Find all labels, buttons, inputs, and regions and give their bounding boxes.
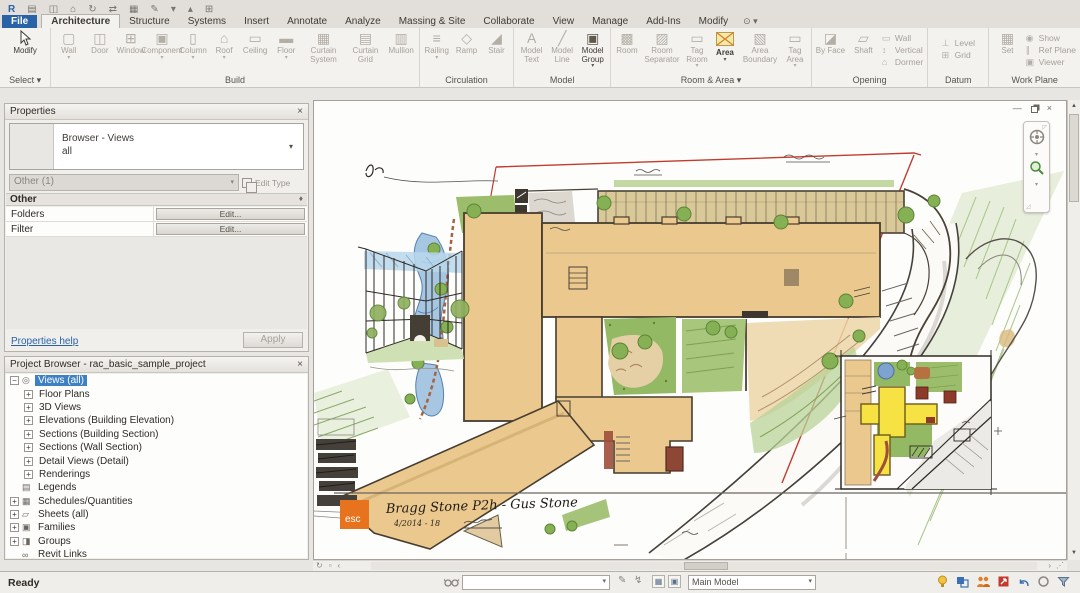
worksets-people-icon[interactable]: [976, 575, 990, 593]
navbar-corner-mark: ◸: [1042, 124, 1047, 131]
type-instance: all: [62, 145, 283, 158]
panel-datum: ⊥Level ⊞Grid Datum: [928, 28, 989, 87]
legends-icon: ▤: [22, 482, 35, 493]
edit-type-button[interactable]: Edit Type: [242, 174, 304, 191]
tab-systems[interactable]: Systems: [179, 15, 235, 28]
tip-bulb-icon[interactable]: [936, 575, 949, 593]
chevron-down-icon: ▾: [230, 176, 234, 189]
measure-icon[interactable]: ✎: [150, 4, 158, 13]
tag-room-button[interactable]: ▭Tag Room▾: [683, 29, 711, 74]
set-work-plane-icon: ▦: [1001, 30, 1014, 47]
perspective-vignette: [358, 247, 469, 371]
mullion-icon: ▥: [395, 30, 408, 47]
link-icon: ∞: [22, 550, 35, 558]
tag-area-icon: ▭: [788, 30, 801, 47]
door-icon: ◫: [93, 30, 106, 47]
views-icon: ◎: [22, 375, 35, 386]
tree-item-families[interactable]: +▣Families: [6, 521, 307, 534]
properties-empty-area: [6, 237, 307, 329]
visual-style-icon[interactable]: ‹: [338, 561, 341, 571]
roof-button[interactable]: ⌂Roof▾: [209, 29, 240, 74]
selection-toggle-icon[interactable]: [1037, 575, 1050, 593]
print-icon[interactable]: ▦: [129, 4, 138, 13]
dormer-button[interactable]: ⌂Dormer: [882, 56, 923, 68]
tab-modify[interactable]: Modify: [690, 15, 737, 28]
tree-item-elevations[interactable]: +Elevations (Building Elevation): [6, 414, 307, 427]
roof-icon: ⌂: [220, 30, 228, 47]
scale-icon[interactable]: ↻: [316, 561, 323, 571]
panel-opening: ◪By Face ▱Shaft ▭Wall ↕Vertical ⌂Dormer …: [812, 28, 928, 87]
inset-detail-plan: [835, 350, 1002, 495]
bolt-icon[interactable]: ↯: [634, 575, 642, 586]
area-boundary-button[interactable]: ▧Area Boundary: [739, 29, 781, 74]
undo-icon[interactable]: ↻: [88, 4, 96, 13]
curtain-system-icon: ▦: [317, 30, 330, 47]
ceiling-button[interactable]: ▭Ceiling: [240, 29, 271, 74]
stair-button[interactable]: ◢Stair: [482, 29, 512, 74]
tab-architecture[interactable]: Architecture: [41, 14, 120, 28]
open-icon[interactable]: ▤: [27, 4, 36, 13]
worksets-glasses-icon[interactable]: [444, 575, 459, 593]
panel-work-plane: ▦Set ◉Show ∥Ref Plane ▣Viewer Work Plane: [989, 28, 1080, 87]
room-icon: ▩: [620, 30, 633, 47]
wall-button[interactable]: ▢Wall▾: [53, 29, 84, 74]
ceiling-icon: ▭: [249, 30, 262, 47]
site-plan-sketch: esc Bragg Stone P2h - Gus Stone 4/2014 -…: [314, 101, 1067, 560]
esc-logo-text: esc: [345, 514, 361, 525]
minimize-icon[interactable]: —: [1013, 104, 1022, 113]
vertical-opening-icon: ↕: [882, 45, 892, 55]
scroll-up-icon[interactable]: ▲: [1069, 101, 1079, 112]
shaft-icon: ▱: [858, 30, 869, 47]
curtain-system-button[interactable]: ▦Curtain System: [302, 29, 346, 74]
tree-item-floor-plans[interactable]: +Floor Plans: [6, 387, 307, 400]
model-group-icon: ▣: [586, 30, 599, 47]
active-workset-combobox[interactable]: ▾: [462, 575, 610, 590]
grid-icon[interactable]: ⊞: [205, 4, 213, 13]
sheet-icon: ▱: [22, 509, 35, 520]
save-icon[interactable]: ◫: [49, 4, 58, 13]
shaft-button[interactable]: ▱Shaft: [847, 29, 880, 74]
sheet-date-handwriting: 4/2014 - 18: [393, 519, 440, 528]
tree-item-legends[interactable]: ▤Legends: [6, 481, 307, 494]
drawing-area[interactable]: esc Bragg Stone P2h - Gus Stone 4/2014 -…: [313, 100, 1067, 560]
room-separator-button[interactable]: ▨Room Separator: [641, 29, 683, 74]
wall-opening-button[interactable]: ▭Wall: [882, 32, 923, 44]
chevron-down-icon[interactable]: ▾: [1035, 153, 1038, 158]
filter-icon[interactable]: [1057, 575, 1070, 593]
column-button[interactable]: ▯Column▾: [178, 29, 209, 74]
tag-area-button[interactable]: ▭Tag Area▾: [781, 29, 809, 74]
by-face-button[interactable]: ◪By Face: [814, 29, 847, 74]
ramp-icon: ◇: [461, 30, 472, 47]
select-previous-icon[interactable]: [1017, 575, 1030, 593]
level-button[interactable]: ⊥Level: [942, 37, 975, 49]
tab-view[interactable]: View: [544, 15, 584, 28]
model-text-button[interactable]: AModel Text: [516, 29, 547, 74]
tree-item-views-all[interactable]: −◎Views (all): [6, 374, 307, 387]
edit-type-icon: [242, 178, 252, 188]
railing-button[interactable]: ≡Railing▾: [422, 29, 452, 74]
curtain-grid-button[interactable]: ▤Curtain Grid: [345, 29, 385, 74]
ref-plane-icon: ∥: [1026, 45, 1036, 56]
column-icon: ▯: [189, 30, 197, 47]
pin-icon[interactable]: ♦: [299, 194, 303, 205]
panel-label-circulation: Circulation: [420, 74, 514, 87]
level-icon: ⊥: [942, 38, 952, 49]
type-name: Browser - Views: [62, 132, 283, 145]
modify-menu-icon[interactable]: ⊙ ▾: [737, 15, 764, 28]
vertical-opening-button[interactable]: ↕Vertical: [882, 44, 923, 56]
navigation-bar: ▾ ▾ ◸ ◿: [1023, 121, 1050, 213]
family-icon: ▣: [22, 522, 35, 533]
property-group-header[interactable]: Other ♦: [6, 193, 307, 206]
panel-room-area: ▩Room ▨Room Separator ▭Tag Room▾ Area▾ ▧…: [611, 28, 812, 87]
tab-insert[interactable]: Insert: [235, 15, 278, 28]
tree-item-sheets[interactable]: +▱Sheets (all): [6, 508, 307, 521]
model-group-button[interactable]: ▣Model Group▾: [577, 29, 608, 74]
tree-item-renderings[interactable]: +Renderings: [6, 468, 307, 481]
properties-panel: Properties × Browser - Views all ▾ Other…: [4, 103, 309, 352]
restore-icon[interactable]: [1031, 106, 1038, 113]
tab-file[interactable]: File: [2, 15, 37, 28]
grid-icon: ⊞: [942, 50, 952, 61]
tree-item-sections-wall[interactable]: +Sections (Wall Section): [6, 441, 307, 454]
redo-icon[interactable]: ⇄: [109, 4, 117, 13]
grid-button[interactable]: ⊞Grid: [942, 49, 975, 61]
home-icon[interactable]: ⌂: [70, 4, 76, 13]
project-browser-title: Project Browser - rac_basic_sample_proje…: [10, 359, 297, 370]
wall-opening-icon: ▭: [882, 33, 892, 44]
dropdown-icon[interactable]: ▾: [171, 4, 176, 13]
component-button[interactable]: ▣Component▾: [146, 29, 177, 74]
viewer-button[interactable]: ▣Viewer: [1026, 56, 1076, 68]
tab-structure[interactable]: Structure: [120, 15, 179, 28]
curtain-grid-icon: ▤: [359, 30, 372, 47]
vertical-scroll-thumb[interactable]: [1069, 114, 1079, 202]
close-icon[interactable]: ×: [297, 106, 303, 117]
tree-item-schedules[interactable]: +▦Schedules/Quantities: [6, 495, 307, 508]
property-row-folders: Folders Edit...: [6, 207, 307, 222]
browser-tree: −◎Views (all) +Floor Plans +3D Views +El…: [6, 374, 307, 558]
ref-plane-button[interactable]: ∥Ref Plane: [1026, 44, 1076, 56]
tree-item-detail-views[interactable]: +Detail Views (Detail): [6, 454, 307, 467]
status-bar: Ready ▾ ✎ ↯ ▦ ▣ Main Model▾: [0, 571, 1080, 593]
ribbon-tabs: File Architecture Structure Systems Inse…: [0, 13, 1080, 28]
tree-item-3d-views[interactable]: +3D Views: [6, 401, 307, 414]
ribbon: Modify Select ▾ ▢Wall▾ ◫Door ⊞Window ▣Co…: [0, 28, 1080, 88]
railing-icon: ≡: [433, 30, 441, 47]
model-line-icon: ╱: [558, 30, 566, 47]
revit-window: R ▤ ◫ ⌂ ↻ ⇄ ▦ ✎ ▾ ▴ ⊞ File Architecture …: [0, 0, 1080, 593]
panel-label-select[interactable]: Select ▾: [0, 74, 50, 87]
view-control-bar: ↻ ▫ ‹: [316, 561, 340, 571]
properties-title: Properties: [10, 106, 297, 117]
project-browser-panel: Project Browser - rac_basic_sample_proje…: [4, 356, 309, 560]
quick-access-toolbar: R ▤ ◫ ⌂ ↻ ⇄ ▦ ✎ ▾ ▴ ⊞: [0, 0, 1080, 13]
manage-links-icon[interactable]: [997, 575, 1010, 593]
resize-grip-icon: ⋰: [1056, 561, 1064, 571]
left-palettes: Properties × Browser - Views all ▾ Other…: [4, 103, 309, 560]
section-icon[interactable]: ▴: [188, 4, 193, 13]
dormer-icon: ⌂: [882, 57, 892, 67]
panel-label-datum: Datum: [928, 74, 988, 87]
stair-icon: ◢: [491, 30, 502, 47]
set-button[interactable]: ▦Set: [991, 29, 1023, 74]
horizontal-scroll-thumb[interactable]: [684, 562, 728, 570]
chevron-down-icon[interactable]: ▾: [1035, 183, 1038, 188]
tree-item-sections-building[interactable]: +Sections (Building Section): [6, 428, 307, 441]
canvas-bottom-strip: ↻ ▫ ‹ › ⋰: [313, 560, 1067, 571]
model-text-icon: A: [527, 30, 536, 47]
close-view-icon[interactable]: ×: [1047, 104, 1052, 113]
panel-label-work-plane: Work Plane: [989, 74, 1080, 87]
wall-icon: ▢: [62, 30, 75, 47]
design-options-icon[interactable]: [956, 575, 969, 593]
panel-build: ▢Wall▾ ◫Door ⊞Window ▣Component▾ ▯Column…: [51, 28, 420, 87]
status-right-icons: [936, 575, 1070, 593]
detail-level-icon[interactable]: ▫: [329, 561, 332, 571]
mullion-button[interactable]: ▥Mullion: [386, 29, 417, 74]
panel-model: AModel Text ╱Model Line ▣Model Group▾ Mo…: [514, 28, 611, 87]
modify-cursor-icon: [18, 30, 32, 47]
apply-button[interactable]: Apply: [243, 332, 303, 348]
tab-annotate[interactable]: Annotate: [278, 15, 336, 28]
model-line-button[interactable]: ╱Model Line: [547, 29, 578, 74]
view-window-controls: — ×: [1013, 104, 1052, 113]
area-button[interactable]: Area▾: [711, 29, 739, 74]
tab-massing-site[interactable]: Massing & Site: [390, 15, 475, 28]
vertical-scrollbar[interactable]: ▲ ▼: [1067, 100, 1080, 560]
steering-wheel-icon[interactable]: [1028, 128, 1046, 151]
tab-collaborate[interactable]: Collaborate: [474, 15, 543, 28]
room-button[interactable]: ▩Room: [613, 29, 641, 74]
filter-combobox[interactable]: Other (1) ▾: [9, 174, 239, 191]
door-button[interactable]: ◫Door: [84, 29, 115, 74]
scroll-down-icon[interactable]: ▼: [1069, 548, 1079, 559]
folders-edit-button[interactable]: Edit...: [156, 208, 305, 220]
revit-logo-icon[interactable]: R: [8, 4, 15, 13]
component-icon: ▣: [155, 30, 168, 47]
design-options-mini-icon[interactable]: ▦: [652, 575, 665, 588]
tree-item-groups[interactable]: +◨Groups: [6, 535, 307, 548]
tag-room-icon: ▭: [690, 30, 703, 47]
scroll-right-icon[interactable]: ›: [1048, 561, 1051, 571]
floor-button[interactable]: ▬Floor▾: [271, 29, 302, 74]
chevron-down-icon[interactable]: ▾: [289, 124, 303, 169]
property-row-filter: Filter Edit...: [6, 222, 307, 237]
viewer-icon: ▣: [1026, 57, 1036, 68]
panel-select: Modify Select ▾: [0, 28, 51, 87]
editable-pencil-icon[interactable]: ✎: [618, 575, 626, 586]
modify-button[interactable]: Modify: [2, 29, 48, 74]
area-icon: [716, 32, 734, 49]
design-options-combobox[interactable]: Main Model▾: [688, 575, 816, 590]
filter-edit-button[interactable]: Edit...: [156, 223, 305, 235]
panel-label-opening: Opening: [812, 74, 927, 87]
horizontal-scrollbar[interactable]: [371, 562, 1037, 570]
window-icon: ⊞: [125, 30, 137, 47]
model-mini-icon[interactable]: ▣: [668, 575, 681, 588]
panel-circulation: ≡Railing▾ ◇Ramp ◢Stair Circulation: [420, 28, 515, 87]
tab-manage[interactable]: Manage: [583, 15, 637, 28]
room-separator-icon: ▨: [655, 30, 668, 47]
panel-label-room-area[interactable]: Room & Area ▾: [611, 74, 811, 87]
group-icon: ◨: [22, 536, 35, 547]
ramp-button[interactable]: ◇Ramp: [452, 29, 482, 74]
type-selector[interactable]: Browser - Views all ▾: [9, 123, 304, 170]
panel-label-build: Build: [51, 74, 419, 87]
show-icon: ◉: [1026, 33, 1036, 44]
schedule-icon: ▦: [22, 496, 35, 507]
zoom-icon[interactable]: [1029, 160, 1045, 181]
panel-label-model: Model: [514, 74, 610, 87]
tree-item-revit-links[interactable]: ∞Revit Links: [6, 548, 307, 558]
navbar-corner-mark: ◿: [1026, 203, 1031, 210]
show-work-plane-button[interactable]: ◉Show: [1026, 32, 1076, 44]
close-icon[interactable]: ×: [297, 359, 303, 370]
area-boundary-icon: ▧: [753, 30, 766, 47]
status-text: Ready: [8, 577, 40, 589]
type-thumbnail: [10, 124, 54, 169]
by-face-icon: ◪: [824, 30, 837, 47]
floor-icon: ▬: [279, 30, 293, 47]
tab-add-ins[interactable]: Add-Ins: [637, 15, 689, 28]
properties-help-link[interactable]: Properties help: [11, 336, 78, 347]
tab-analyze[interactable]: Analyze: [336, 15, 390, 28]
